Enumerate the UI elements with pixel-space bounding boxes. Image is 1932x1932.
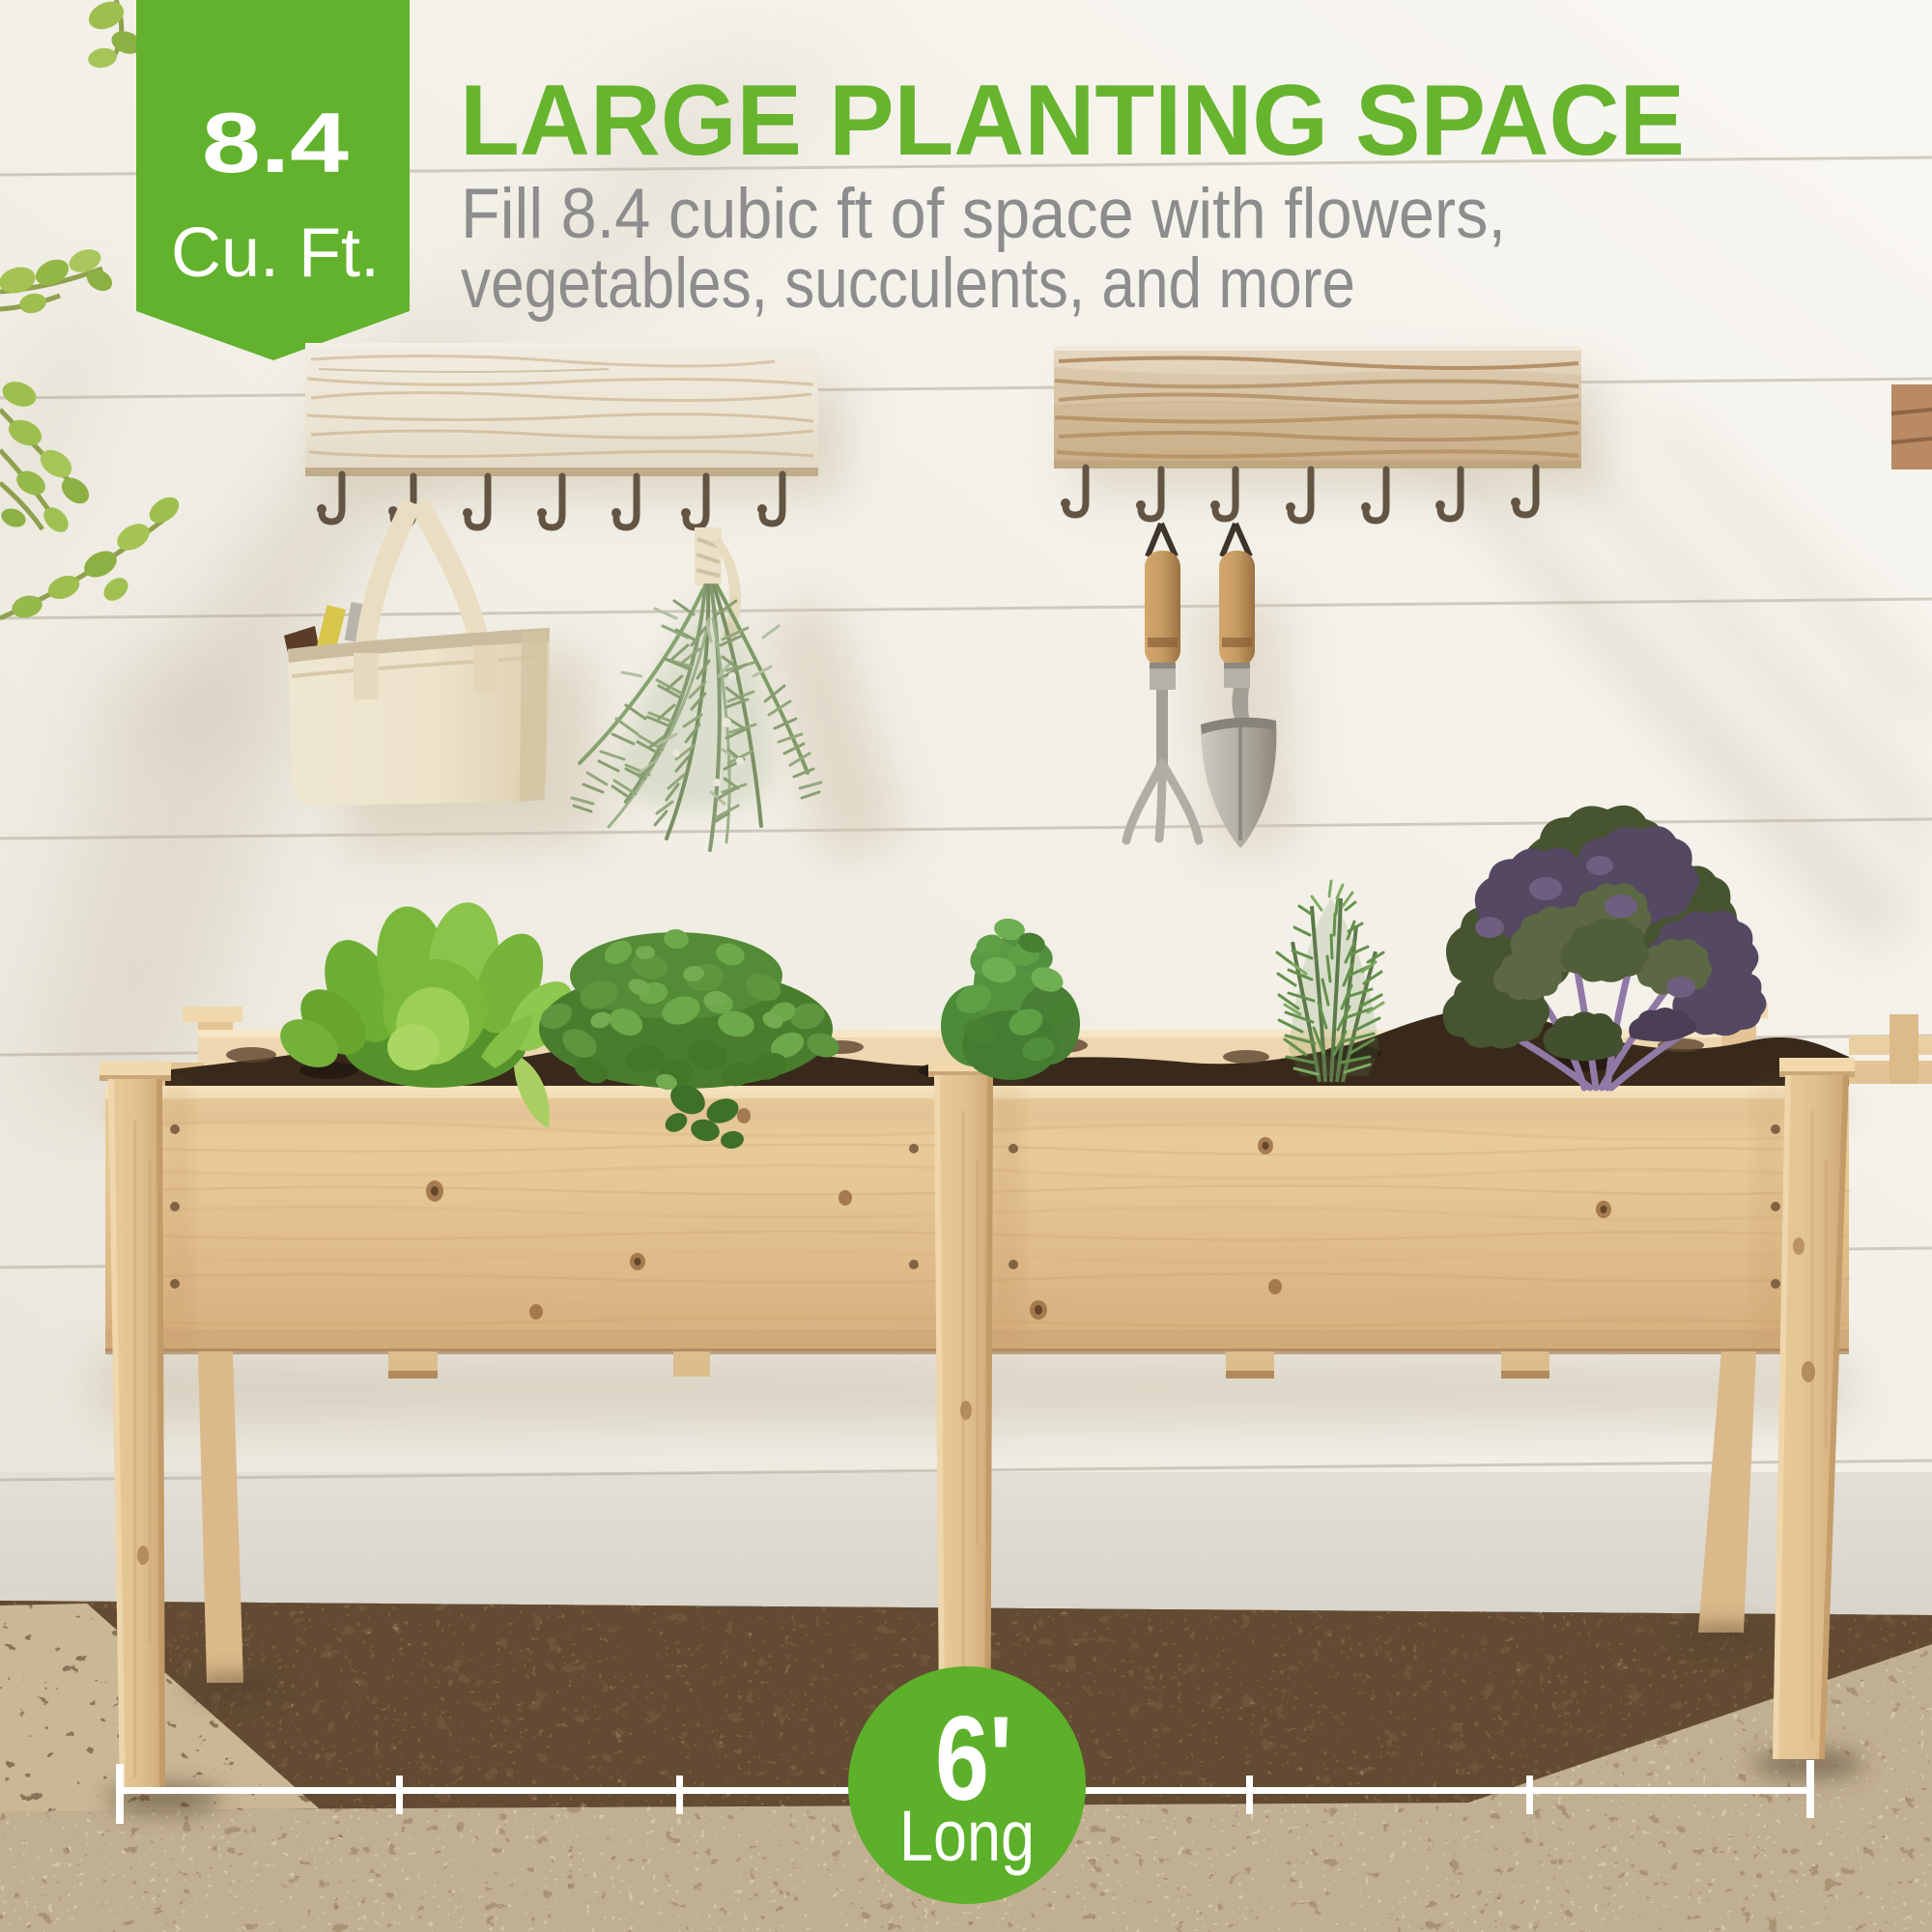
svg-text:LARGE PLANTING SPACE: LARGE PLANTING SPACE [460,65,1685,177]
svg-text:8.4: 8.4 [202,95,349,190]
svg-text:Fill 8.4 cubic ft of space wit: Fill 8.4 cubic ft of space with flowers, [461,175,1506,253]
svg-text:Cu. Ft.: Cu. Ft. [171,214,380,292]
svg-text:Long: Long [899,1796,1035,1876]
svg-text:vegetables, succulents, and mo: vegetables, succulents, and more [461,244,1355,323]
